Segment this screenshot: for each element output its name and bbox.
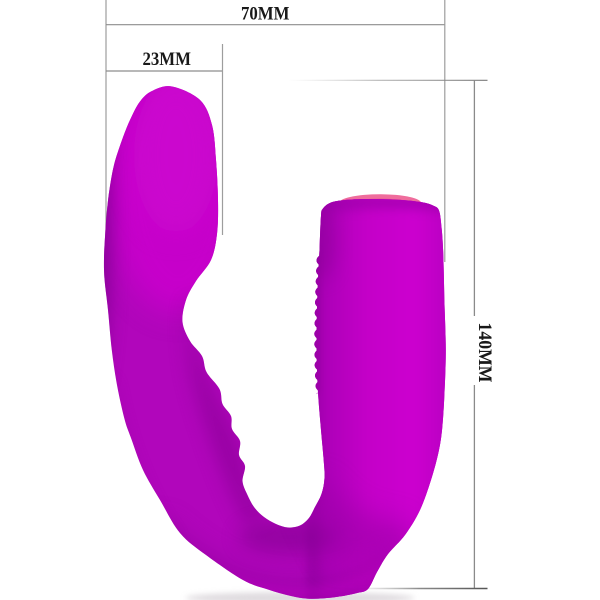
svg-text:70MM: 70MM	[241, 4, 290, 25]
svg-text:140MM: 140MM	[474, 323, 495, 383]
svg-text:23MM: 23MM	[143, 49, 192, 70]
